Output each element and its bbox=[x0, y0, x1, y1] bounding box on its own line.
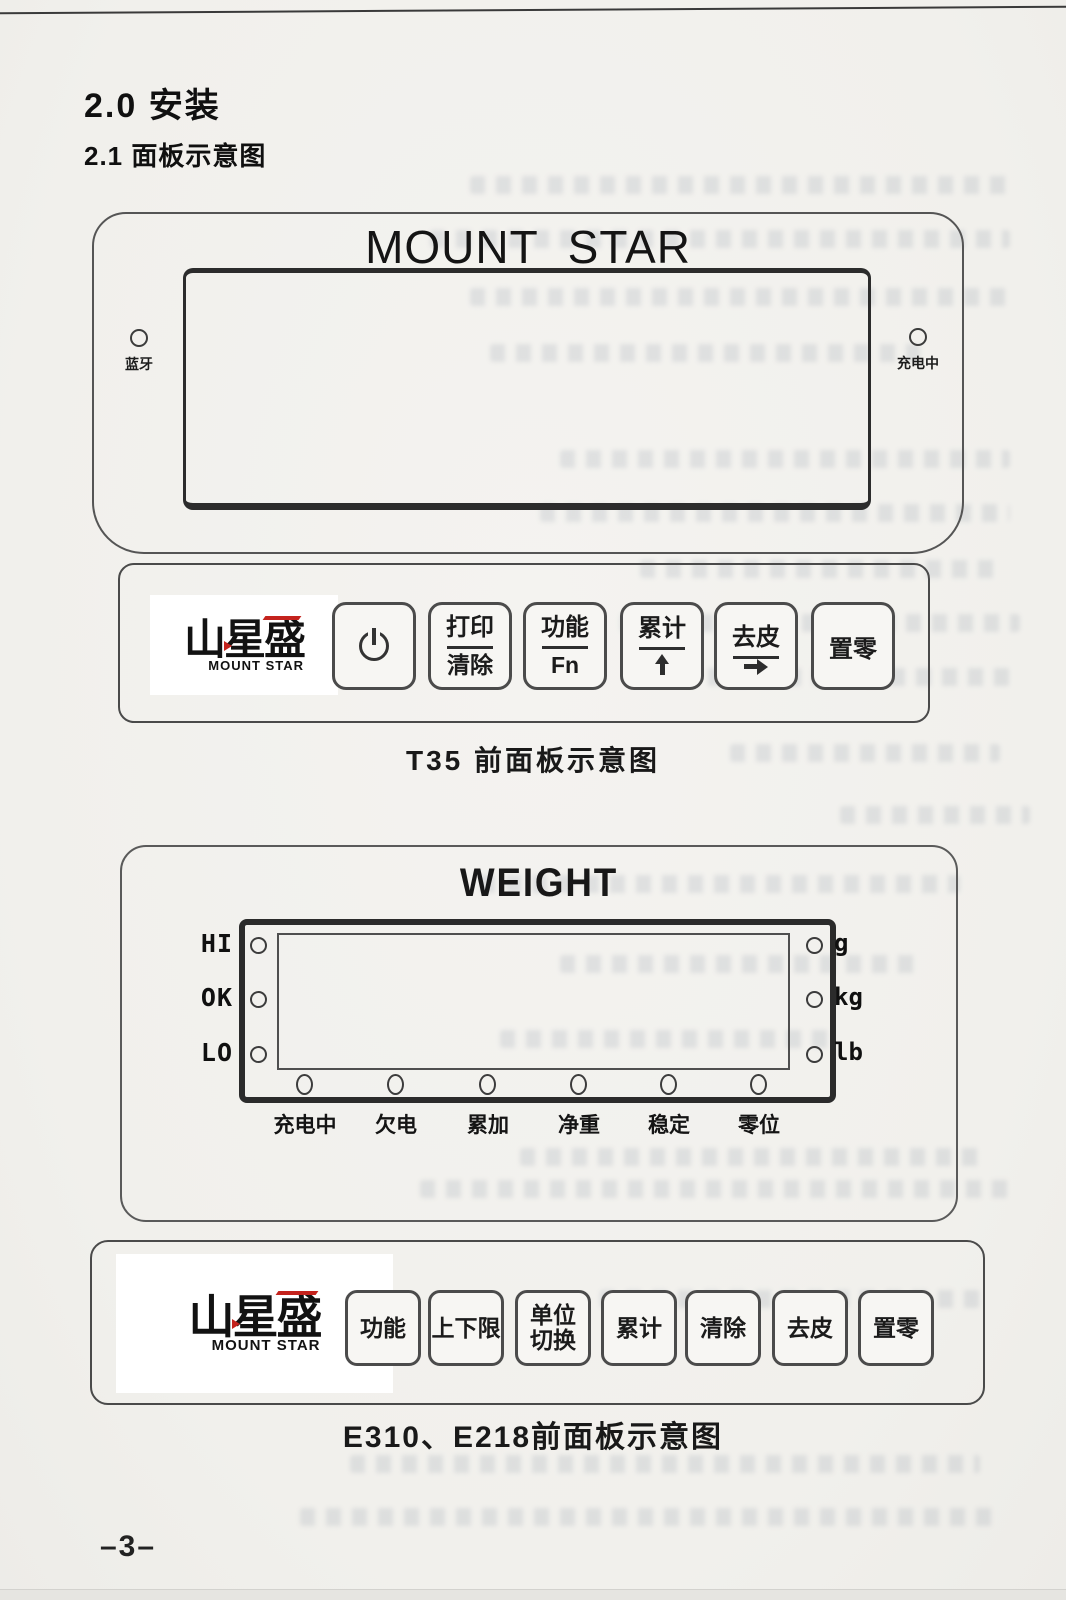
lo-label: LO bbox=[181, 1038, 233, 1067]
ok-indicator-lamp bbox=[250, 991, 267, 1008]
hi-indicator-lamp bbox=[250, 937, 267, 954]
gram-indicator-lamp bbox=[806, 937, 823, 954]
button-divider bbox=[639, 647, 685, 650]
function-fn-button: 功能 Fn bbox=[523, 602, 607, 690]
e310-caption: E310、E218前面板示意图 bbox=[0, 1412, 1066, 1456]
accumulate-button: 累计 bbox=[620, 602, 704, 690]
zero-button: 置零 bbox=[858, 1290, 934, 1366]
low-battery-status-label: 欠电 bbox=[356, 1109, 436, 1139]
pound-indicator-lamp bbox=[806, 1046, 823, 1063]
bluetooth-label: 蓝牙 bbox=[107, 354, 171, 374]
e310-keypad-diagram: 山星盛 MOUNT STAR 功能 上下限 单位 切换 累计 清除 去皮 置零 bbox=[90, 1240, 985, 1405]
logo-red-accent bbox=[263, 616, 302, 620]
zero-status-label: 零位 bbox=[719, 1109, 799, 1139]
zero-label: 置零 bbox=[829, 629, 877, 664]
right-arrow-tail bbox=[744, 664, 757, 669]
power-button bbox=[332, 602, 416, 690]
charging-label: 充电中 bbox=[873, 353, 963, 373]
function-label: 功能 bbox=[541, 615, 589, 640]
scan-edge-line bbox=[0, 6, 1066, 15]
ok-label: OK bbox=[181, 983, 233, 1012]
subsection-title: 2.1 面板示意图 bbox=[84, 136, 266, 173]
bleedthrough-artifact bbox=[350, 1455, 980, 1473]
bleedthrough-artifact bbox=[300, 1508, 1000, 1526]
lo-indicator-lamp bbox=[250, 1046, 267, 1063]
weight-title: WEIGHT bbox=[155, 861, 922, 906]
mount-star-logo: 山星盛 MOUNT STAR bbox=[150, 595, 338, 695]
function-button: 功能 bbox=[345, 1290, 421, 1366]
net-weight-status-label: 净重 bbox=[539, 1109, 619, 1139]
net-weight-status-lamp bbox=[570, 1074, 587, 1095]
charging-indicator-lamp bbox=[909, 328, 927, 346]
mount-star-logo-text: 山星盛 MOUNT STAR bbox=[189, 1294, 321, 1353]
tare-label: 去皮 bbox=[732, 625, 780, 650]
brand-name: MOUNT STAR bbox=[94, 220, 962, 274]
tare-button: 去皮 bbox=[714, 602, 798, 690]
low-battery-status-lamp bbox=[387, 1074, 404, 1095]
bluetooth-indicator-lamp bbox=[130, 329, 148, 347]
hi-label: HI bbox=[181, 929, 233, 958]
accumulate-status-lamp bbox=[479, 1074, 496, 1095]
button-divider bbox=[447, 646, 493, 649]
power-icon-stem bbox=[368, 628, 380, 645]
pound-unit-label: lb bbox=[834, 1038, 863, 1066]
logo-chinese-text: 山星盛 bbox=[189, 1294, 321, 1340]
clear-button: 清除 bbox=[685, 1290, 761, 1366]
accumulate-label: 累计 bbox=[638, 616, 686, 641]
right-arrow-head bbox=[757, 659, 768, 675]
gram-unit-label: g bbox=[834, 929, 848, 957]
kilogram-unit-label: kg bbox=[834, 983, 863, 1011]
charging-status-lamp bbox=[296, 1074, 313, 1095]
mount-star-logo-text: 山星盛 MOUNT STAR bbox=[184, 619, 304, 672]
tare-button: 去皮 bbox=[772, 1290, 848, 1366]
stable-status-label: 稳定 bbox=[629, 1109, 709, 1139]
logo-red-triangle bbox=[224, 641, 232, 651]
logo-red-accent bbox=[276, 1291, 318, 1295]
fn-label: Fn bbox=[551, 653, 579, 677]
scan-edge-strip bbox=[0, 1589, 1066, 1600]
page-number: –3– bbox=[100, 1530, 156, 1564]
scanned-manual-page: 2.0 安装 2.1 面板示意图 MOUNT STAR 蓝牙 充电中 山星盛 M… bbox=[0, 0, 1066, 1600]
t35-caption: T35 前面板示意图 bbox=[0, 739, 1066, 779]
unit-switch-button: 单位 切换 bbox=[515, 1290, 591, 1366]
bleedthrough-artifact bbox=[470, 176, 1010, 194]
section-title: 2.0 安装 bbox=[84, 78, 221, 127]
print-clear-button: 打印 清除 bbox=[428, 602, 512, 690]
clear-label: 清除 bbox=[447, 653, 493, 677]
weight-display-diagram: WEIGHT HI OK LO g kg lb 充电中 欠电 累加 净重 稳定 … bbox=[120, 845, 958, 1222]
button-divider bbox=[733, 656, 779, 659]
bleedthrough-artifact bbox=[840, 806, 1030, 824]
charging-status-label: 充电中 bbox=[265, 1109, 345, 1139]
button-divider bbox=[542, 646, 588, 649]
t35-keypad-diagram: 山星盛 MOUNT STAR 打印 清除 功能 Fn 累计 bbox=[118, 563, 930, 723]
lcd-screen bbox=[277, 933, 790, 1070]
accumulate-button: 累计 bbox=[601, 1290, 677, 1366]
logo-chinese-text: 山星盛 bbox=[184, 619, 304, 661]
logo-red-triangle bbox=[232, 1319, 240, 1329]
up-arrow-tail bbox=[660, 664, 665, 675]
accumulate-status-label: 累加 bbox=[448, 1109, 528, 1139]
lcd-display-area bbox=[183, 268, 871, 510]
print-label: 打印 bbox=[446, 615, 494, 640]
up-arrow-head bbox=[655, 654, 669, 664]
stable-status-lamp bbox=[660, 1074, 677, 1095]
kilogram-indicator-lamp bbox=[806, 991, 823, 1008]
t35-display-unit-diagram: MOUNT STAR 蓝牙 充电中 bbox=[92, 212, 964, 554]
zero-button: 置零 bbox=[811, 602, 895, 690]
power-icon bbox=[356, 628, 392, 664]
limit-button: 上下限 bbox=[428, 1290, 504, 1366]
zero-status-lamp bbox=[750, 1074, 767, 1095]
